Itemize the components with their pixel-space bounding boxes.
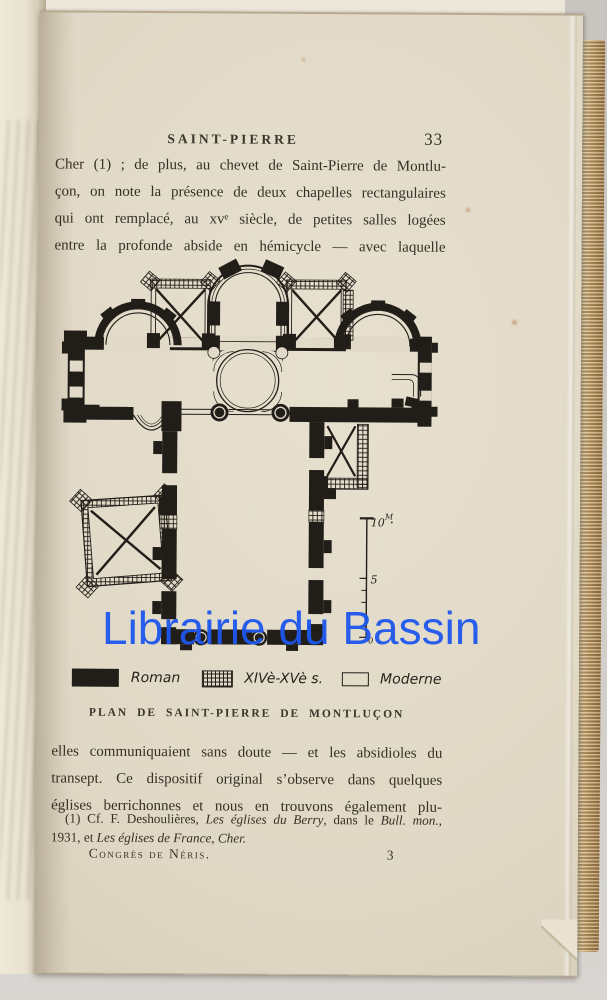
running-title: SAINT-PIERRE <box>55 130 445 148</box>
page-footer: Congrès de Néris. 3 <box>51 845 442 863</box>
text-line: qui ont remplacé, au xvᵉ siècle, de peti… <box>55 205 446 234</box>
scale-label-10: 10 <box>371 516 385 529</box>
text-line: transept. Ce dispositif original s’obser… <box>51 765 442 794</box>
legend-swatch-moderne <box>342 672 369 686</box>
legend-swatch-14th-15th-century <box>202 670 233 687</box>
transept-walls <box>61 330 438 432</box>
text-line: elles communiquaient sans doute — et les… <box>51 738 442 767</box>
scale-unit: M <box>384 512 394 521</box>
footnote: (1) Cf. F. Deshoulières, Les églises du … <box>51 809 442 848</box>
folded-corner <box>541 919 577 967</box>
page-header: SAINT-PIERRE 33 <box>55 130 445 148</box>
text-line: çon, on note la présence de deux chapell… <box>55 178 446 207</box>
footnote-text: 1931, et <box>51 829 97 844</box>
legend-label-14th-15th-century: XIVè-XVè s. <box>244 671 323 687</box>
footnote-title-italic: Les églises de France, Cher. <box>97 829 247 845</box>
page-crease <box>563 16 577 976</box>
signature-number: 3 <box>387 847 394 863</box>
footnote-text: (1) Cf. F. Deshoulières, <box>65 811 206 827</box>
plan-legend: Roman XIVè-XVè s. Moderne <box>72 669 442 689</box>
crossing-dome <box>181 346 289 422</box>
footnote-text: , <box>439 813 442 828</box>
legend-swatch-roman <box>72 669 119 687</box>
page-number: 33 <box>424 130 443 150</box>
foxing-spot <box>466 208 470 212</box>
paragraph-top: Cher (1) ; de plus, au chevet de Saint-P… <box>54 151 446 261</box>
scale-label-5: 5 <box>370 573 377 586</box>
congress-imprint: Congrès de Néris. <box>89 846 211 862</box>
southwest-gothic-chapel <box>69 483 183 598</box>
text-line: Cher (1) ; de plus, au chevet de Saint-P… <box>55 151 446 180</box>
footnote-line: (1) Cf. F. Deshoulières, Les églises du … <box>51 809 442 830</box>
facing-page-showthrough <box>0 120 40 900</box>
footnote-text: , dans le <box>323 812 380 827</box>
foxing-spot <box>512 320 517 325</box>
book-page: SAINT-PIERRE 33 Cher (1) ; de plus, au c… <box>34 10 583 976</box>
legend-label-moderne: Moderne <box>380 671 441 687</box>
watermark: Librairie du Bassin <box>102 601 480 655</box>
book-photo: SAINT-PIERRE 33 Cher (1) ; de plus, au c… <box>0 0 607 1000</box>
legend-label-roman: Roman <box>131 670 180 686</box>
foxing-spot <box>302 58 305 61</box>
footnote-title-italic: Les églises du Berry <box>206 811 324 827</box>
plan-caption: PLAN DE SAINT-PIERRE DE MONTLUÇON <box>52 706 442 720</box>
footnote-title-italic: Bull. mon. <box>381 812 439 827</box>
